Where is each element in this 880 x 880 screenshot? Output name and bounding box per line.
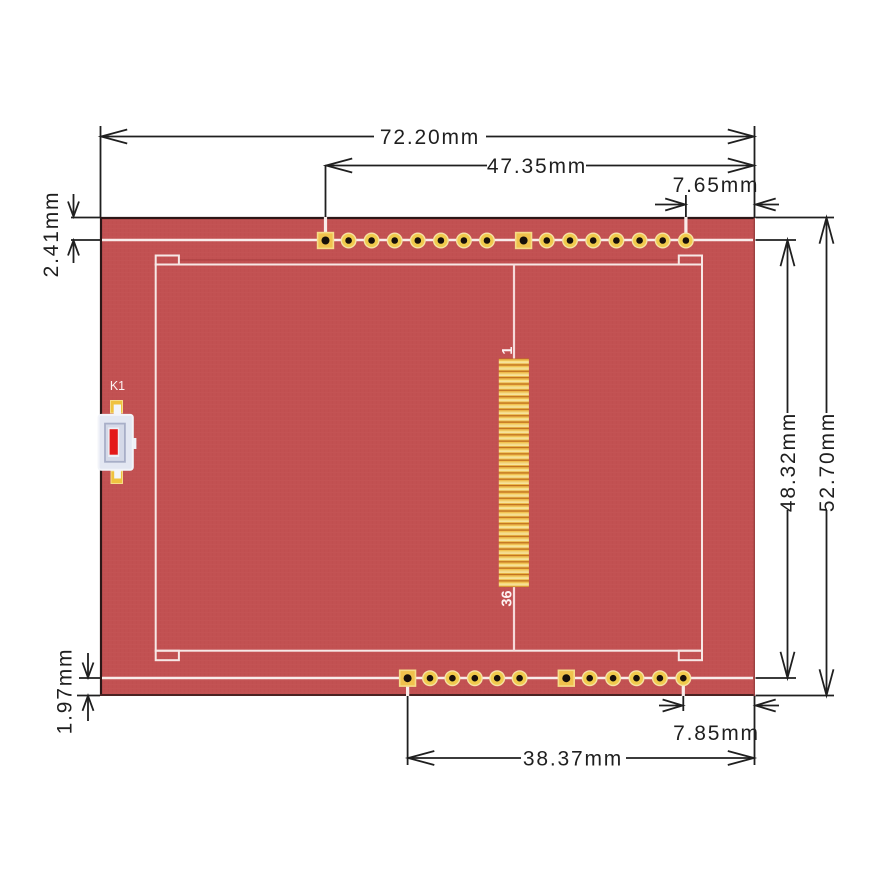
svg-text:72.20mm: 72.20mm	[380, 126, 480, 149]
svg-text:1.97mm: 1.97mm	[53, 648, 76, 735]
svg-text:36: 36	[499, 590, 515, 606]
svg-text:48.32mm: 48.32mm	[777, 412, 800, 512]
svg-text:52.70mm: 52.70mm	[816, 412, 839, 512]
svg-text:47.35mm: 47.35mm	[487, 155, 587, 178]
svg-text:38.37mm: 38.37mm	[523, 748, 623, 771]
svg-text:7.85mm: 7.85mm	[673, 722, 760, 745]
svg-text:2.41mm: 2.41mm	[40, 191, 63, 278]
svg-text:K1: K1	[110, 379, 125, 393]
svg-text:7.65mm: 7.65mm	[673, 174, 760, 197]
svg-text:1: 1	[500, 347, 516, 355]
